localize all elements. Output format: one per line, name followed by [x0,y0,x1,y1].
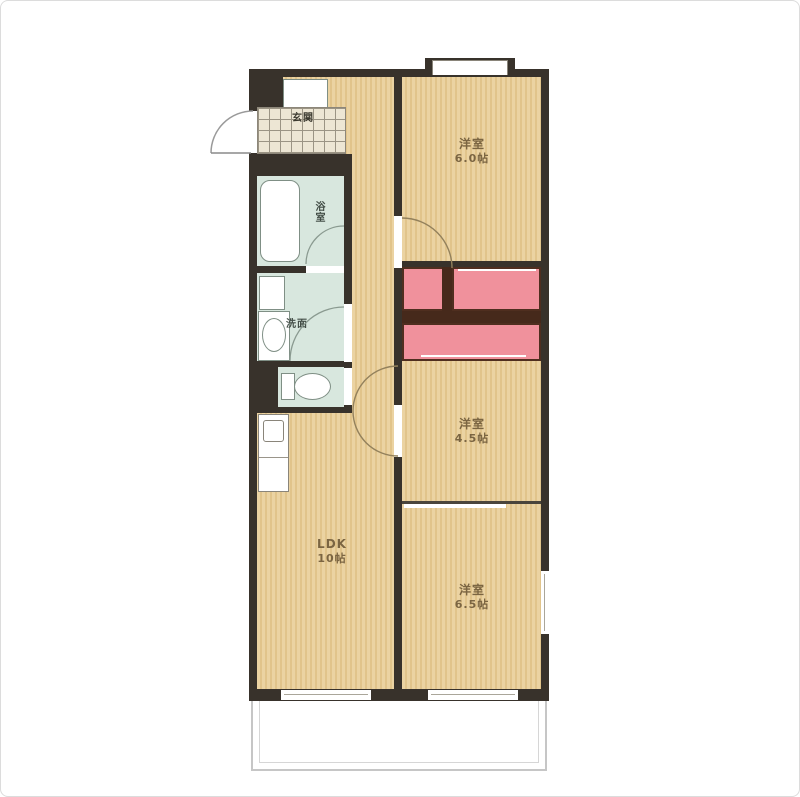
western65-label: 洋室 6.5帖 [447,583,497,612]
partition-opening [404,504,506,508]
toilet-bottom-wall [249,407,344,413]
western45-label: 洋室 4.5帖 [447,417,497,446]
washbasin [262,318,286,352]
toilet-door-opening [344,368,352,405]
ldk-window-line [284,694,368,695]
bathroom-label: 浴室 [311,201,326,247]
bathroom-door-opening [306,266,344,273]
entrance-door-opening [249,111,257,153]
closet-mid-wall [402,311,541,323]
entrance-door-arc [211,111,253,153]
ldk-window [281,690,371,700]
closet-upper [452,267,541,311]
right-window [541,571,549,634]
toilet-tank [281,373,295,400]
western6-door-opening [394,216,402,268]
shoe-cabinet [283,79,328,109]
toilet-bowl [294,373,331,400]
closet-small [402,267,444,311]
washroom-label: 洗面 [286,315,308,330]
closet-lower-track [421,355,526,357]
corner-wall-block [257,77,283,109]
toilet-side-wall [257,367,278,407]
wall-band [249,154,352,176]
western65-window [428,690,518,700]
western65-window-line [431,694,515,695]
floor-plan-image: 玄関 浴室 洗面 LDK 10帖 洋室 6.0帖 [0,0,800,797]
right-window-line [544,574,545,631]
western6-label: 洋室 6.0帖 [447,137,497,166]
bathtub [260,180,300,262]
balcony-inner-rail [259,701,539,763]
washing-machine-space [259,276,285,310]
washroom-door-opening [344,304,352,362]
hall-door-opening [394,405,402,457]
closet-upper-track [458,269,536,271]
entrance-label: 玄関 [292,109,314,124]
kitchen-sink [263,420,284,442]
ldk-label: LDK 10帖 [304,537,360,566]
bay-window [432,60,508,75]
